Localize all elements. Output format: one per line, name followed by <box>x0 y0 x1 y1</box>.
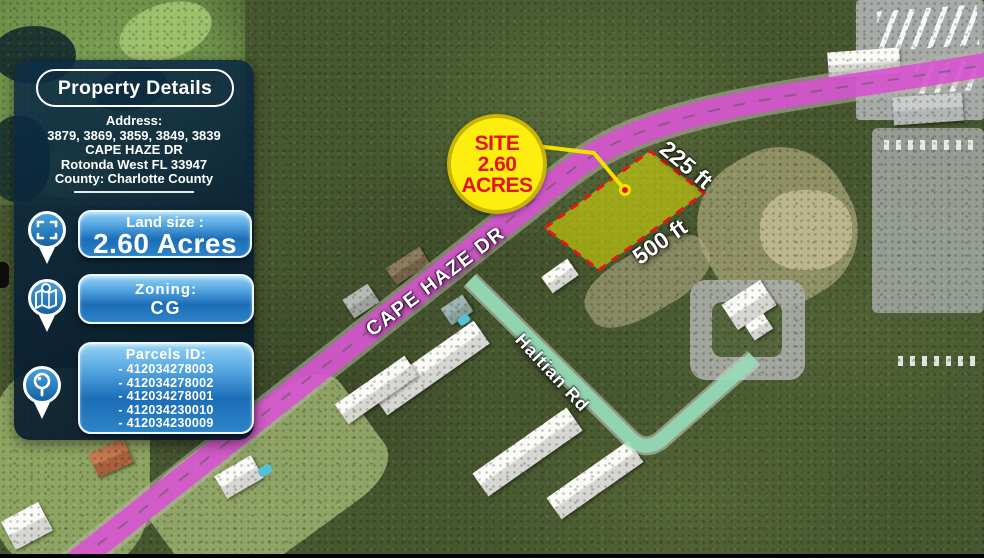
pushpin-pin-icon <box>20 364 64 422</box>
land-size-value: 2.60 Acres <box>80 231 250 257</box>
bottom-letterbox-bar <box>0 554 984 558</box>
parcel-id: - 412034278001 <box>80 390 252 404</box>
edge-tab <box>0 262 9 288</box>
site-badge-line3: ACRES <box>461 175 532 196</box>
zoning-value: CG <box>80 298 252 319</box>
parcels-button: Parcels ID: - 412034278003 - 41203427800… <box>78 342 254 434</box>
site-badge-line1: SITE <box>475 133 520 154</box>
parcels-label: Parcels ID: <box>80 347 252 363</box>
property-details-panel: Property Details Address: 3879, 3869, 38… <box>14 60 254 440</box>
address-line: CAPE HAZE DR <box>14 143 254 158</box>
parcel-id: - 412034230010 <box>80 404 252 418</box>
parcel-id: - 412034230009 <box>80 417 252 431</box>
address-label: Address: <box>14 114 254 129</box>
crop-frame-pin-icon <box>25 209 69 267</box>
zoning-label: Zoning: <box>80 281 252 298</box>
map-pin-icon <box>25 277 69 335</box>
site-leader-dot <box>621 186 630 195</box>
parcel-id: - 412034278003 <box>80 363 252 377</box>
address-block: Address: 3879, 3869, 3859, 3849, 3839 CA… <box>14 114 254 187</box>
parcel-id: - 412034278002 <box>80 377 252 391</box>
address-line: County: Charlotte County <box>14 172 254 187</box>
property-aerial-map: CAPE HAZE DR Haltian Rd 225 ft 500 ft SI… <box>0 0 984 558</box>
site-badge-line2: 2.60 <box>478 154 517 175</box>
panel-divider <box>74 191 194 193</box>
site-acreage-badge: SITE 2.60 ACRES <box>447 114 547 214</box>
address-line: Rotonda West FL 33947 <box>14 158 254 173</box>
panel-title: Property Details <box>36 69 234 107</box>
land-size-button: Land size : 2.60 Acres <box>78 210 252 258</box>
address-line: 3879, 3869, 3859, 3849, 3839 <box>14 129 254 144</box>
zoning-button: Zoning: CG <box>78 274 254 324</box>
road-secondary-highlight <box>470 280 754 446</box>
